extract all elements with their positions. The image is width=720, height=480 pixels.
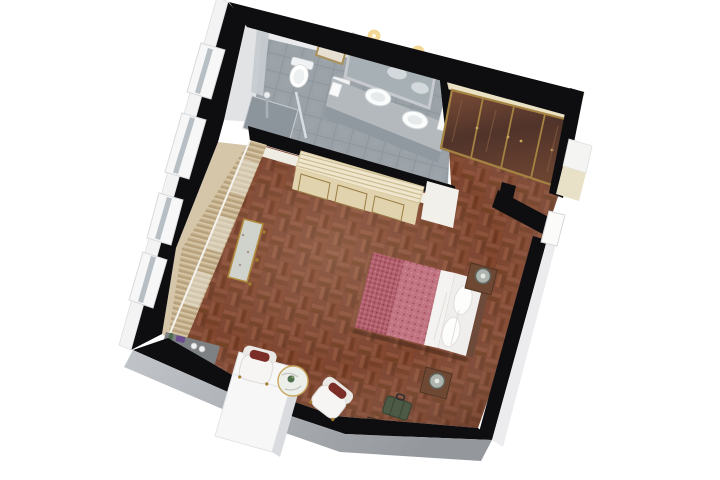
floorplan-stage xyxy=(0,0,720,480)
side-table xyxy=(278,366,308,396)
floorplan-render xyxy=(0,0,720,480)
vanity-sconce-1 xyxy=(372,34,376,38)
lamp-lower-top xyxy=(435,379,440,384)
shower-head xyxy=(264,92,270,98)
console-cup-2 xyxy=(199,346,205,352)
lamp-upper-top xyxy=(481,274,486,279)
console-cup-1 xyxy=(191,343,197,349)
